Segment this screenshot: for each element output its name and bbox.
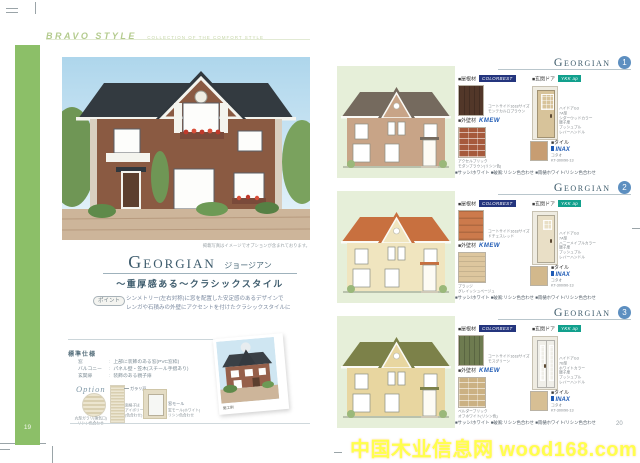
window-2f-center [183, 103, 219, 133]
roof-swatch [458, 210, 484, 241]
georgian-section-3: Georgian 3 [335, 305, 633, 430]
spec-label: バルコニー [78, 365, 106, 372]
door-knob [544, 364, 546, 368]
photo-caption: 掲載写真はイメージでオプションが含まれております。 [195, 242, 310, 248]
house-panel [337, 191, 455, 303]
style-title-kana: ジョージアン [224, 261, 272, 270]
style-title-block: Georgian ジョージアン [95, 252, 305, 273]
header-rule [46, 39, 310, 40]
window-mold-option [143, 389, 167, 419]
door-caption: ハイドアG3 7B型 ホワイトカラー 親子扉 プッシュプル レバーハンドル [559, 357, 609, 386]
spec-row: 玄関扉:装飾のある親子扉 [78, 372, 152, 379]
roof-material-label: ■屋根材COLORBEST [458, 325, 516, 333]
wall-swatch [458, 377, 486, 408]
section-rule [498, 319, 631, 320]
door-material-label: ■玄関ドアYKK ap [532, 200, 581, 208]
wall-label-text: ■外壁材 [458, 243, 476, 249]
wall-material-label: ■外壁材KMEW [458, 367, 500, 374]
wall-swatch [458, 127, 486, 158]
example-house-illustration [216, 337, 279, 404]
brand-header: BRAVO STYLE COLLECTION OF THE COMFORT ST… [46, 26, 264, 44]
tile-swatch [530, 141, 548, 161]
spec-row: 窓:上部に装飾のある窓(PVC窓枠) [78, 358, 179, 365]
section-rule [498, 194, 631, 195]
bush [196, 202, 228, 216]
point-text: シンメトリー(左右対称)に窓を配置した安定感のあるデザインで レンガや石積みの外… [126, 295, 312, 312]
section-title: Georgian [554, 55, 611, 69]
house-panel [337, 66, 455, 178]
title-rule [103, 273, 297, 274]
example-photo: 施工例 [213, 333, 289, 415]
door-swatch [532, 86, 558, 140]
inax-logo: INAX [551, 396, 570, 403]
section-rule [498, 69, 631, 70]
roof-brand-badge: COLORBEST [479, 325, 515, 332]
door-material-label: ■玄関ドアYKK ap [532, 75, 581, 83]
shutter [174, 103, 182, 133]
window-2f-left [114, 129, 140, 153]
door [537, 340, 555, 388]
wall-brand-logo: KMEW [479, 368, 500, 374]
bush [255, 202, 279, 214]
door-label-text: ■玄関ドア [532, 202, 555, 208]
corner-quoins [275, 119, 282, 211]
left-accent-bar [15, 45, 40, 445]
door-glass [540, 345, 545, 381]
main-house-photo [62, 57, 310, 240]
option-caption: 丸型ガラリ(換気口) リシン色合わせ [66, 417, 116, 427]
style-subtitle: 〜重厚感ある〜クラシックスタイル [95, 277, 305, 290]
section-number-badge: 3 [618, 306, 631, 319]
catalog-spread: 19 BRAVO STYLE COLLECTION OF THE COMFORT… [0, 0, 640, 463]
roof-brand-badge: COLORBEST [479, 75, 515, 82]
door-glass [541, 94, 554, 110]
spec-row: バルコニー:パネル壁・笠木(スチール手摺あり) [78, 365, 189, 372]
tile-caption: コタオ KT-300/90-13 [551, 404, 588, 414]
entrance-door [122, 172, 140, 208]
section-footnote: ■サッシ/ホワイト ■破風:リシン色合わせ ■雨樋ホワイト/リシン色合わせ [455, 169, 585, 176]
wall-brand-logo: KMEW [479, 243, 500, 249]
house-illustration [337, 195, 455, 299]
roof-label-text: ■屋根材 [458, 77, 476, 83]
house-illustration [337, 320, 455, 424]
door-glass [549, 345, 554, 381]
spec-label: 窓 [78, 358, 106, 365]
wall-swatch [458, 252, 486, 283]
door-swatch [532, 211, 558, 265]
roof-material-label: ■屋根材COLORBEST [458, 75, 516, 83]
crop-mark [6, 12, 18, 13]
door-caption: ハイドアG3 7A型 シダーウッドカラー 親子扉 プッシュプル レバーハンドル [559, 107, 609, 136]
section-title: Georgian [554, 180, 611, 194]
wall-material-label: ■外壁材KMEW [458, 117, 500, 124]
door [537, 90, 555, 138]
double-door-divider [546, 341, 547, 387]
crop-mark [0, 449, 10, 450]
crop-mark [334, 452, 342, 453]
door-brand-badge: YKK ap [558, 75, 581, 82]
louver-door-option [110, 385, 125, 423]
bottom-rule [70, 423, 310, 424]
crop-mark [632, 228, 640, 229]
door-swatch [532, 336, 558, 390]
door-knob [550, 114, 552, 118]
wall-label-text: ■外壁材 [458, 118, 476, 124]
style-title: Georgian [128, 252, 216, 272]
door-brand-badge: YKK ap [558, 200, 581, 207]
tile-label: ■タイル [551, 264, 569, 271]
example-caption: 施工例 [223, 404, 234, 410]
bush [88, 204, 116, 218]
roof-material-label: ■屋根材COLORBEST [458, 200, 516, 208]
wall-label-text: ■外壁材 [458, 368, 476, 374]
door-knob [550, 239, 552, 243]
roof-swatch [458, 335, 484, 366]
house-panel [337, 316, 455, 428]
roof-swatch [458, 85, 484, 116]
spec-rule [68, 339, 218, 340]
page-number-left: 19 [15, 424, 40, 431]
balcony [106, 153, 150, 162]
wall-material-label: ■外壁材KMEW [458, 242, 500, 249]
section-footnote: ■サッシ/ホワイト ■破風:リシン色合わせ ■雨樋ホワイト/リシン色合わせ [455, 419, 585, 426]
window-pane [148, 394, 164, 416]
crop-mark [52, 446, 53, 463]
georgian-section-2: Georgian 2 [335, 180, 633, 305]
tile-label: ■タイル [551, 389, 569, 396]
window-2f-right [238, 131, 262, 151]
crop-mark [6, 8, 18, 9]
door-material-label: ■玄関ドアYKK ap [532, 325, 581, 333]
corner-quoins [90, 119, 97, 211]
round-louver-option [82, 393, 106, 417]
door-caption: ハイドアG3 7A型 ハニーメイプルカラー 親子扉 プッシュプル レバーハンドル [559, 232, 609, 261]
tile-swatch [530, 266, 548, 286]
gable-vent [195, 91, 207, 103]
inax-logo: INAX [551, 146, 570, 153]
point-badge: ポイント [93, 296, 125, 306]
georgian-section-1: Georgian 1 [335, 55, 633, 180]
spec-label: 玄関扉 [78, 372, 106, 379]
shutter [220, 103, 228, 133]
door-brand-badge: YKK ap [558, 325, 581, 332]
spec-value: 装飾のある親子扉 [113, 374, 151, 379]
option-label: 窓モール [168, 400, 184, 406]
crop-mark [35, 2, 36, 14]
small-tree [151, 151, 169, 203]
option-caption: 窓モール(ホワイト) リシン色合わせ [168, 409, 211, 419]
section-title: Georgian [554, 305, 611, 319]
roof-label-text: ■屋根材 [458, 202, 476, 208]
tile-swatch [530, 391, 548, 411]
leader-line [124, 388, 129, 389]
page-number-right: 20 [616, 421, 623, 427]
wall-brand-logo: KMEW [479, 118, 500, 124]
roof-label-text: ■屋根材 [458, 327, 476, 333]
tile-caption: コタオ KT-300/90-13 [551, 154, 588, 164]
house-illustration [337, 70, 455, 174]
tile-label: ■タイル [551, 139, 569, 146]
inax-logo: INAX [551, 271, 570, 278]
door [537, 215, 555, 263]
door-glass [543, 220, 552, 230]
section-number-badge: 1 [618, 56, 631, 69]
roof-brand-badge: COLORBEST [479, 200, 515, 207]
door-label-text: ■玄関ドア [532, 327, 555, 333]
watermark: 中国木业信息网 wood168.com [350, 433, 637, 462]
spec-title: 標準仕様 [68, 349, 96, 358]
section-number-badge: 2 [618, 181, 631, 194]
tile-caption: コタオ KT-300/90-13 [551, 279, 588, 289]
section-footnote: ■サッシ/ホワイト ■破風:リシン色合わせ ■雨樋ホワイト/リシン色合わせ [455, 294, 585, 301]
door-label-text: ■玄関ドア [532, 77, 555, 83]
